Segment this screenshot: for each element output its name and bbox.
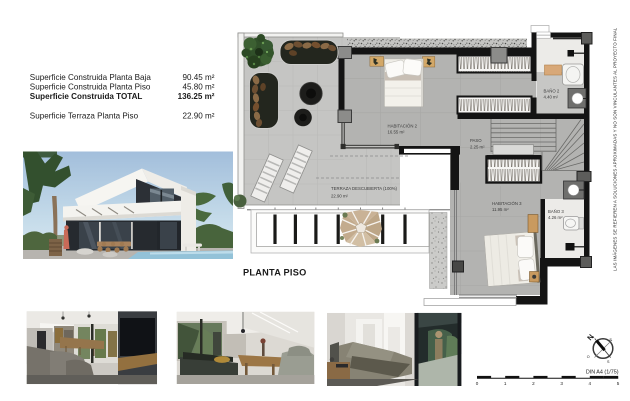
svg-text:22.90 m²: 22.90 m² xyxy=(331,194,349,199)
svg-text:BAÑO 3: BAÑO 3 xyxy=(548,209,564,214)
svg-text:2: 2 xyxy=(532,381,535,386)
svg-text:HABITACIÓN 3: HABITACIÓN 3 xyxy=(492,201,522,206)
svg-text:5: 5 xyxy=(617,381,620,386)
svg-text:136.25 m²: 136.25 m² xyxy=(178,92,215,101)
svg-text:90.45 m²: 90.45 m² xyxy=(183,73,215,82)
svg-text:4.26 m²: 4.26 m² xyxy=(548,215,563,220)
svg-text:0: 0 xyxy=(476,381,479,386)
svg-text:Superficie Construida Planta B: Superficie Construida Planta Baja xyxy=(30,73,152,82)
svg-text:3: 3 xyxy=(560,381,563,386)
svg-text:BAÑO 2: BAÑO 2 xyxy=(544,89,560,94)
svg-text:LAS IMÁGENES SE REFIEREN A SOL: LAS IMÁGENES SE REFIEREN A SOLUCIONES AP… xyxy=(613,27,618,271)
svg-text:PLANTA PISO: PLANTA PISO xyxy=(243,267,307,277)
svg-text:TERRAZA DESCUBIERTA (100%): TERRAZA DESCUBIERTA (100%) xyxy=(331,186,398,191)
svg-text:Superficie Construida Planta P: Superficie Construida Planta Piso xyxy=(30,83,151,92)
svg-text:16.55 m²: 16.55 m² xyxy=(388,130,406,135)
svg-text:1: 1 xyxy=(504,381,507,386)
svg-text:Superficie Terraza Planta Piso: Superficie Terraza Planta Piso xyxy=(30,112,139,121)
svg-text:4: 4 xyxy=(589,381,592,386)
svg-text:O: O xyxy=(587,355,590,359)
svg-text:HABITACIÓN 2: HABITACIÓN 2 xyxy=(388,124,418,129)
svg-text:22.90 m²: 22.90 m² xyxy=(183,112,215,121)
svg-text:4.40 m²: 4.40 m² xyxy=(544,95,559,100)
svg-text:Superficie Construida TOTAL: Superficie Construida TOTAL xyxy=(30,92,143,101)
svg-text:11.95 m²: 11.95 m² xyxy=(492,207,509,212)
svg-text:2.25 m²: 2.25 m² xyxy=(470,144,485,149)
svg-text:PASO: PASO xyxy=(470,138,482,143)
svg-text:45.80 m²: 45.80 m² xyxy=(183,83,215,92)
svg-text:DIN A4 (1/75): DIN A4 (1/75) xyxy=(586,370,619,376)
